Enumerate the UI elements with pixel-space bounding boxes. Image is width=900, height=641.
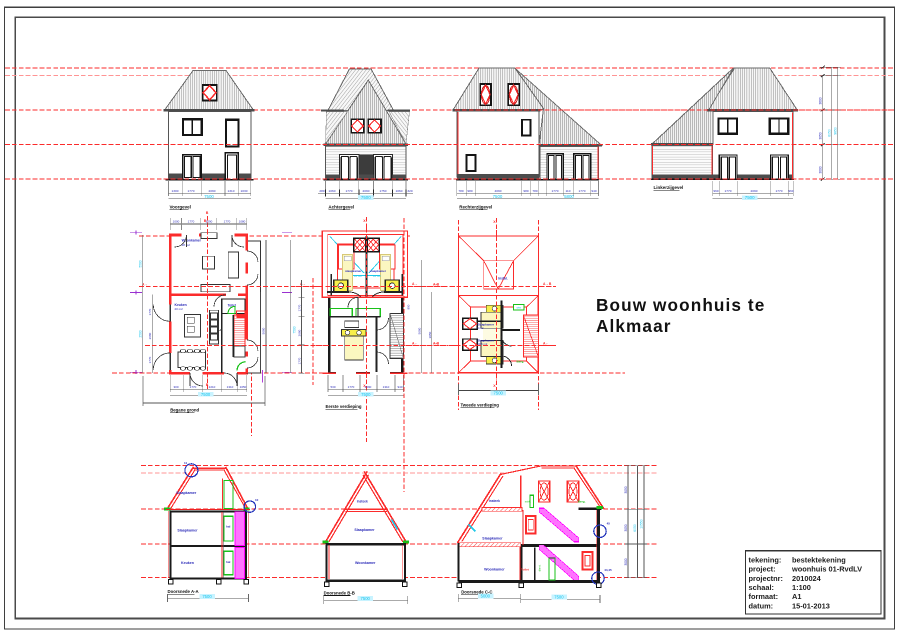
svg-text:1770: 1770 (725, 189, 732, 193)
svg-text:320: 320 (407, 189, 412, 193)
svg-text:Slaapkamer: Slaapkamer (176, 491, 197, 495)
svg-text:Berg.: Berg. (578, 500, 586, 504)
svg-text:5800: 5800 (564, 194, 574, 199)
svg-text:6050: 6050 (828, 129, 832, 137)
svg-text:Toilet: Toilet (521, 568, 529, 572)
svg-text:5080: 5080 (418, 327, 422, 334)
svg-text:3000: 3000 (624, 558, 628, 565)
svg-text:10550: 10550 (640, 519, 644, 529)
svg-text:3600: 3600 (819, 97, 823, 104)
svg-text:Slaapkamer: Slaapkamer (482, 537, 503, 541)
svg-text:Rechterzijgevel: Rechterzijgevel (459, 205, 492, 210)
svg-text:1310: 1310 (228, 189, 235, 193)
svg-text:44,45: 44,45 (604, 568, 612, 572)
svg-text:16 m2: 16 m2 (373, 274, 381, 278)
svg-text:Slaapkamer: Slaapkamer (354, 528, 375, 532)
svg-text:Berg.: Berg. (517, 359, 525, 363)
svg-text:110: 110 (566, 189, 571, 193)
svg-text:woonhuis 01-RvdLV: woonhuis 01-RvdLV (791, 565, 862, 574)
svg-text:2680: 2680 (148, 332, 152, 339)
svg-text:940: 940 (397, 385, 402, 389)
svg-text:960: 960 (713, 189, 718, 193)
svg-text:project:: project: (749, 565, 776, 574)
svg-text:A1: A1 (792, 592, 801, 601)
svg-text:1:100: 1:100 (792, 583, 811, 592)
svg-text:980: 980 (523, 189, 528, 193)
svg-text:1770: 1770 (348, 385, 355, 389)
svg-text:1770: 1770 (188, 220, 195, 224)
svg-text:Linkerzijgevel: Linkerzijgevel (654, 185, 684, 190)
svg-text:Alkmaar: Alkmaar (596, 316, 672, 336)
svg-text:7500: 7500 (361, 596, 371, 601)
svg-text:dient.: dient. (538, 564, 542, 571)
svg-text:Woonkamer: Woonkamer (484, 568, 505, 572)
svg-text:schaal:: schaal: (749, 583, 774, 592)
svg-text:projectnr:: projectnr: (749, 574, 784, 583)
svg-text:A•B: A•B (433, 283, 440, 287)
svg-text:2500: 2500 (139, 330, 143, 337)
svg-text:Woonkamer: Woonkamer (355, 561, 376, 565)
svg-text:B: B (206, 211, 209, 215)
svg-text:1770: 1770 (188, 189, 195, 193)
svg-text:7500: 7500 (554, 594, 564, 599)
svg-text:1770: 1770 (298, 357, 302, 364)
svg-text:4090: 4090 (495, 189, 502, 193)
svg-text:Slaapkamer: Slaapkamer (177, 529, 198, 533)
svg-text:11: 11 (184, 461, 188, 465)
svg-text:2090: 2090 (365, 385, 372, 389)
svg-text:1770: 1770 (579, 189, 586, 193)
svg-text:1060: 1060 (396, 189, 403, 193)
svg-text:7500: 7500 (202, 594, 212, 599)
svg-text:Begane grond: Begane grond (170, 408, 199, 413)
svg-text:1770: 1770 (298, 304, 302, 311)
svg-text:300: 300 (173, 385, 178, 389)
svg-text:9 m2: 9 m2 (477, 326, 484, 330)
svg-text:Achtergevel: Achtergevel (328, 205, 354, 210)
svg-text:16 m2: 16 m2 (354, 274, 362, 278)
svg-text:7500: 7500 (494, 391, 504, 396)
svg-text:2090: 2090 (363, 189, 370, 193)
svg-text:Instal.: Instal. (498, 276, 507, 280)
svg-text:1310: 1310 (383, 385, 390, 389)
svg-text:1770: 1770 (224, 220, 231, 224)
svg-text:insteek: insteek (357, 500, 368, 504)
svg-text:formaat:: formaat: (749, 592, 779, 601)
svg-text:2090: 2090 (751, 189, 758, 193)
svg-text:tekening:: tekening: (749, 555, 782, 564)
svg-text:A←: A← (412, 342, 418, 346)
svg-text:7500: 7500 (201, 392, 211, 397)
svg-text:940: 940 (591, 189, 596, 193)
svg-text:7500: 7500 (204, 194, 214, 199)
svg-text:780: 780 (532, 189, 537, 193)
svg-text:3050: 3050 (624, 524, 628, 531)
svg-text:20 m2: 20 m2 (175, 307, 184, 311)
svg-text:1750: 1750 (380, 189, 387, 193)
svg-text:280: 280 (319, 189, 324, 193)
svg-text:hal: hal (226, 560, 231, 564)
svg-text:Insteek: Insteek (489, 499, 500, 503)
svg-text:Keuken: Keuken (181, 561, 194, 565)
svg-text:A→B: A→B (543, 282, 552, 286)
svg-text:1050: 1050 (240, 385, 247, 389)
svg-text:1030: 1030 (241, 189, 248, 193)
svg-text:2210: 2210 (209, 385, 216, 389)
svg-text:1300: 1300 (172, 189, 179, 193)
svg-text:7500: 7500 (293, 326, 297, 333)
svg-text:15-01-2013: 15-01-2013 (792, 601, 830, 610)
svg-text:1770: 1770 (552, 189, 559, 193)
svg-text:9650: 9650 (833, 127, 837, 135)
svg-text:2680: 2680 (298, 329, 302, 336)
svg-text:3000: 3000 (819, 166, 823, 173)
svg-text:980: 980 (467, 189, 472, 193)
svg-text:1080: 1080 (239, 220, 246, 224)
svg-text:1770: 1770 (776, 189, 783, 193)
svg-text:Eerste verdieping: Eerste verdieping (326, 404, 362, 409)
svg-text:2010024: 2010024 (792, 574, 822, 583)
svg-text:wtw: wtw (516, 306, 521, 310)
svg-text:10: 10 (255, 498, 259, 502)
svg-text:3050: 3050 (624, 486, 628, 493)
svg-text:A•B: A•B (433, 342, 440, 346)
svg-text:5000: 5000 (481, 594, 491, 599)
svg-text:1060: 1060 (329, 189, 336, 193)
svg-text:A→: A→ (412, 282, 418, 286)
svg-text:slaapkamer: slaapkamer (345, 269, 362, 273)
svg-text:1770: 1770 (148, 308, 152, 315)
svg-text:780: 780 (458, 189, 463, 193)
svg-text:890: 890 (406, 304, 410, 309)
svg-text:1770: 1770 (148, 356, 152, 363)
svg-text:5080: 5080 (262, 327, 266, 334)
svg-text:A→: A→ (300, 282, 306, 286)
svg-text:2090: 2090 (209, 189, 216, 193)
svg-text:3050: 3050 (428, 331, 432, 338)
svg-text:6050: 6050 (633, 524, 637, 532)
svg-text:bestektekening: bestektekening (792, 555, 846, 564)
svg-text:1770: 1770 (190, 385, 197, 389)
svg-text:slaapkamer: slaapkamer (370, 269, 387, 273)
svg-text:Doorsnede A-A: Doorsnede A-A (168, 589, 199, 594)
svg-text:45: 45 (607, 522, 611, 526)
svg-text:7500: 7500 (745, 195, 755, 200)
svg-text:Tweede verdieping: Tweede verdieping (461, 403, 500, 408)
svg-text:5500: 5500 (139, 260, 143, 267)
svg-text:mtrk.: mtrk. (525, 500, 531, 504)
svg-text:530: 530 (330, 385, 335, 389)
svg-text:A←: A← (543, 342, 549, 346)
svg-text:Bouw woonhuis te: Bouw woonhuis te (596, 295, 765, 315)
svg-text:datum:: datum: (749, 601, 774, 610)
svg-text:7500: 7500 (493, 194, 503, 199)
svg-text:Voorgevel: Voorgevel (170, 205, 191, 210)
svg-text:hal: hal (226, 525, 231, 529)
svg-text:1310: 1310 (227, 385, 234, 389)
svg-text:Doorsnede B-B: Doorsnede B-B (324, 590, 355, 595)
svg-text:1000: 1000 (173, 220, 180, 224)
svg-text:3050: 3050 (819, 132, 823, 139)
svg-text:1770: 1770 (346, 189, 353, 193)
svg-text:7500: 7500 (361, 392, 371, 397)
svg-text:2090: 2090 (206, 220, 213, 224)
svg-text:960: 960 (788, 189, 793, 193)
svg-text:7500: 7500 (361, 195, 371, 200)
